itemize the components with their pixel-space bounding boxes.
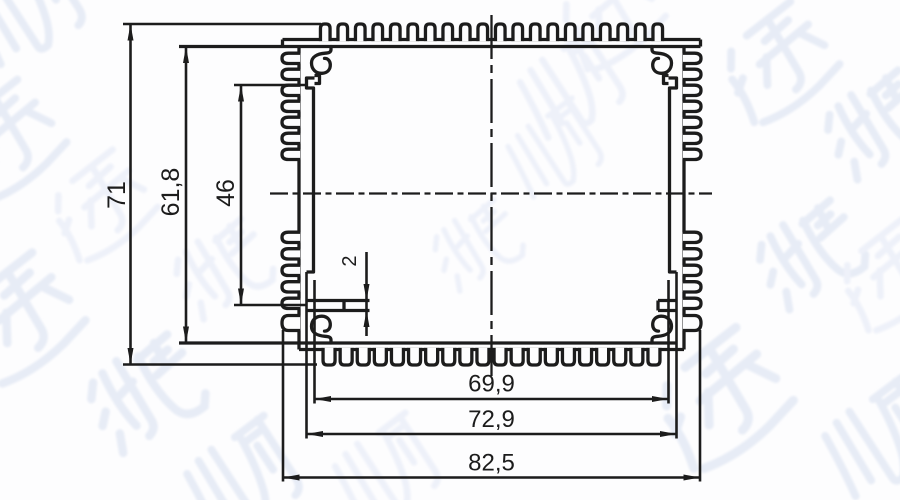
svg-text:72,9: 72,9 [468,406,515,433]
svg-text:82,5: 82,5 [468,450,515,477]
svg-text:2: 2 [339,255,361,266]
svg-text:46: 46 [212,179,240,207]
svg-text:61,8: 61,8 [157,168,185,217]
svg-text:69,9: 69,9 [468,371,515,398]
svg-text:71: 71 [103,181,131,209]
